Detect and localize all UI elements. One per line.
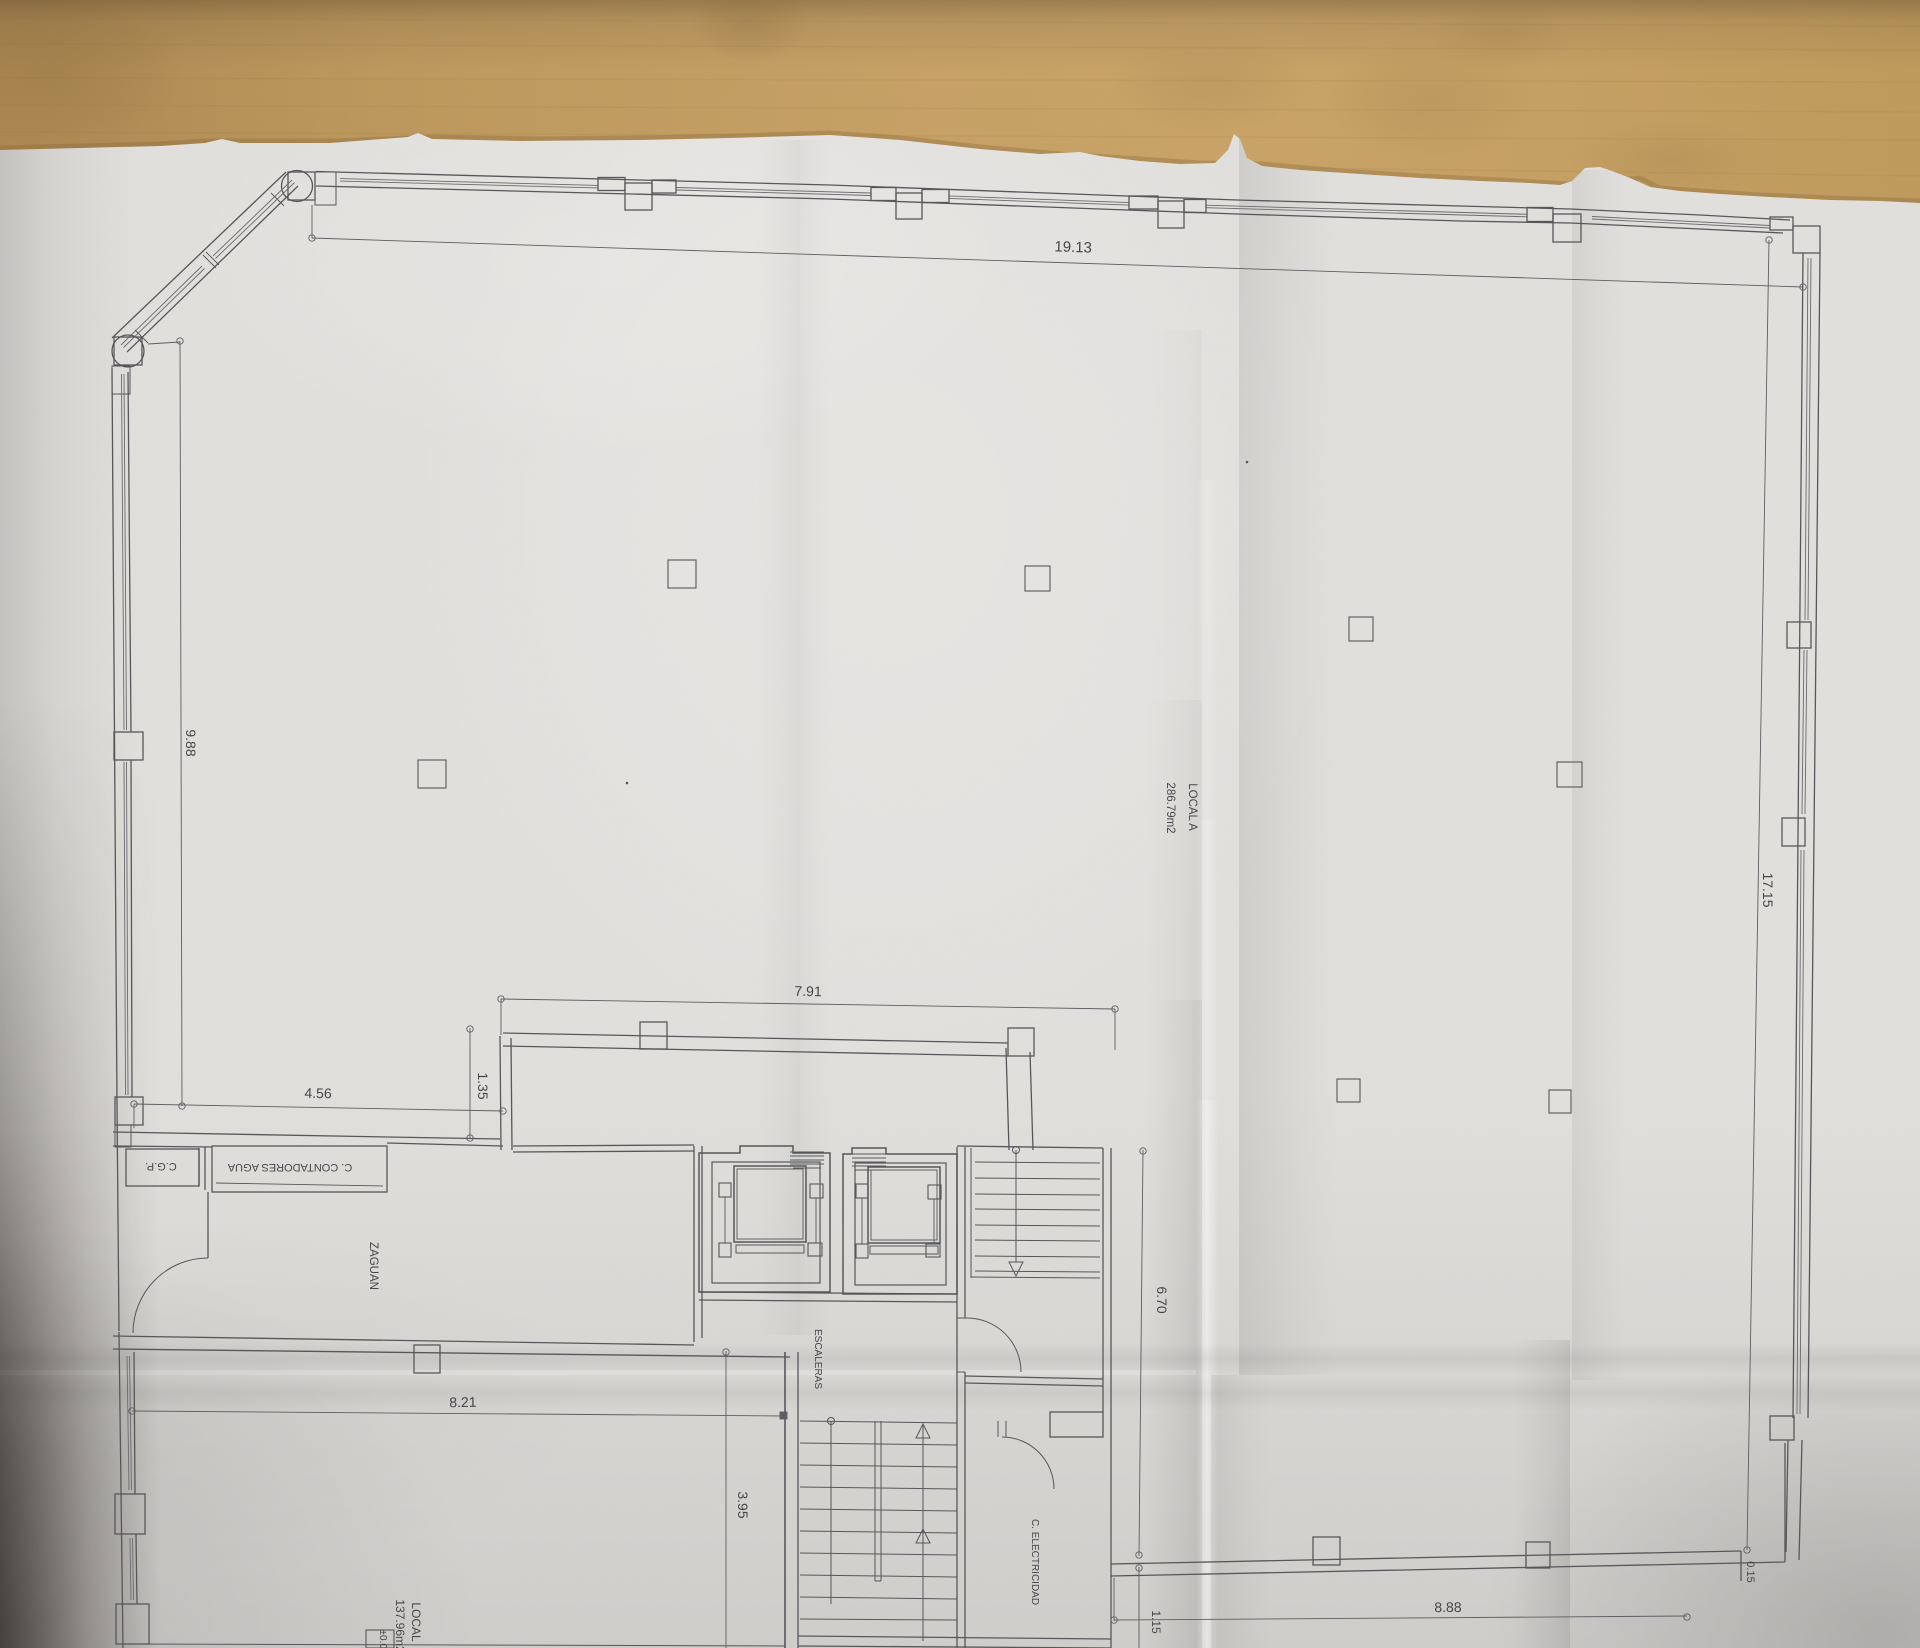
svg-text:8.88: 8.88: [1434, 1599, 1462, 1615]
svg-text:3.95: 3.95: [735, 1491, 751, 1518]
svg-text:6.70: 6.70: [1154, 1286, 1170, 1313]
svg-text:7.91: 7.91: [794, 983, 822, 999]
svg-text:8.21: 8.21: [449, 1394, 477, 1410]
svg-text:286.79m2: 286.79m2: [1164, 782, 1176, 833]
svg-text:LOCAL A: LOCAL A: [1186, 783, 1198, 831]
svg-text:1.15: 1.15: [1149, 1610, 1163, 1634]
svg-text:0.15: 0.15: [1744, 1561, 1756, 1582]
svg-text:C. ELECTRICIDAD: C. ELECTRICIDAD: [1029, 1519, 1040, 1605]
svg-text:137.96m2: 137.96m2: [393, 1599, 407, 1648]
svg-text:9.88: 9.88: [183, 729, 199, 756]
svg-text:4.56: 4.56: [304, 1085, 332, 1101]
svg-text:ESCALERAS: ESCALERAS: [812, 1329, 823, 1389]
svg-text:±0.00: ±0.00: [377, 1630, 388, 1648]
svg-text:ZAGUAN: ZAGUAN: [367, 1242, 379, 1290]
svg-text:LOCAL: LOCAL: [409, 1602, 423, 1642]
svg-text:C.G.P.: C.G.P.: [145, 1160, 177, 1172]
svg-text:19.13: 19.13: [1054, 238, 1092, 256]
svg-text:C. CONTADORES AGUA: C. CONTADORES AGUA: [227, 1161, 352, 1173]
svg-text:17.15: 17.15: [1760, 872, 1776, 907]
svg-text:1.35: 1.35: [475, 1072, 491, 1099]
